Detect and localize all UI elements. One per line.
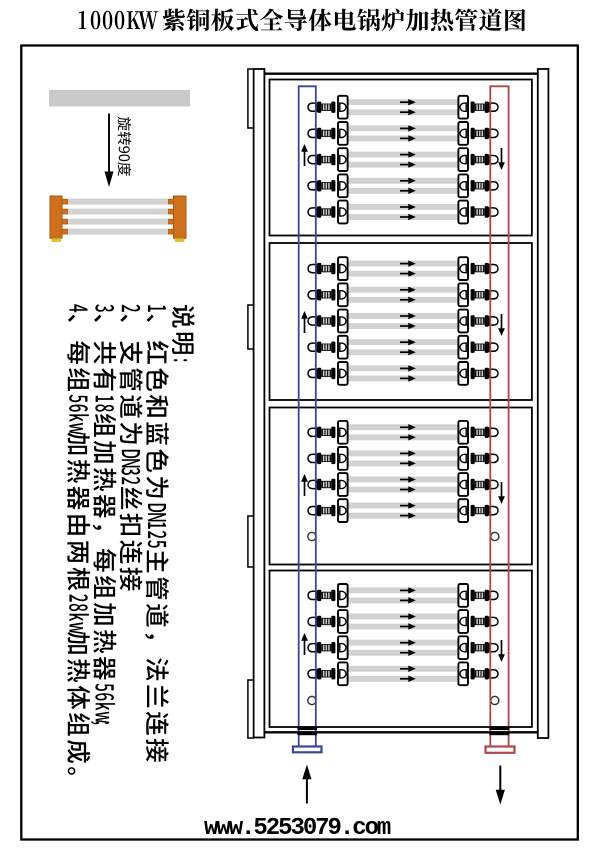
svg-text:www.5253079.com: www.5253079.com — [204, 815, 391, 842]
